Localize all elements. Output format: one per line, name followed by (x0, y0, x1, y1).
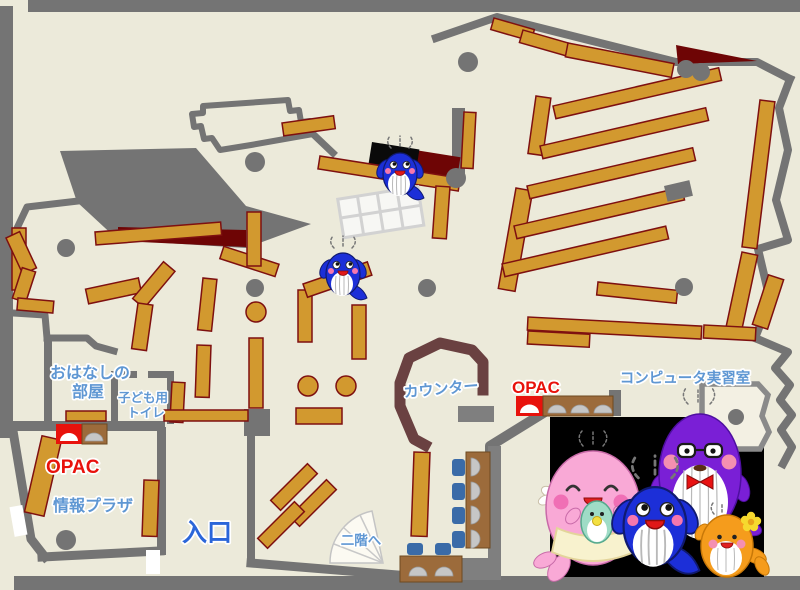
opac-station-left (56, 424, 107, 444)
library-floor-map: おはなしの 部屋 子ども用 トイレ OPAC 情報プラザ 入口 二階へ カウンタ… (0, 0, 800, 590)
opac-right-label: OPAC (512, 378, 560, 397)
opac-left-label: OPAC (46, 457, 100, 478)
entrance-label: 入口 (182, 519, 232, 547)
baby-whale-icon (581, 501, 613, 543)
kids-toilet-label-line1: 子ども用 (118, 391, 168, 405)
computer-room-label: コンピュータ実習室 (620, 369, 751, 387)
storytime-room-label-line2: 部屋 (72, 382, 104, 401)
opac-station-right (516, 396, 613, 416)
second-floor-label: 二階へ (341, 532, 382, 548)
kids-toilet-label-line2: トイレ (127, 406, 165, 420)
storytime-room-label-line1: おはなしの (50, 364, 130, 382)
floor-map-svg: おはなしの 部屋 子ども用 トイレ OPAC 情報プラザ 入口 二階へ カウンタ… (0, 0, 800, 590)
info-plaza-label: 情報プラザ (53, 496, 133, 515)
